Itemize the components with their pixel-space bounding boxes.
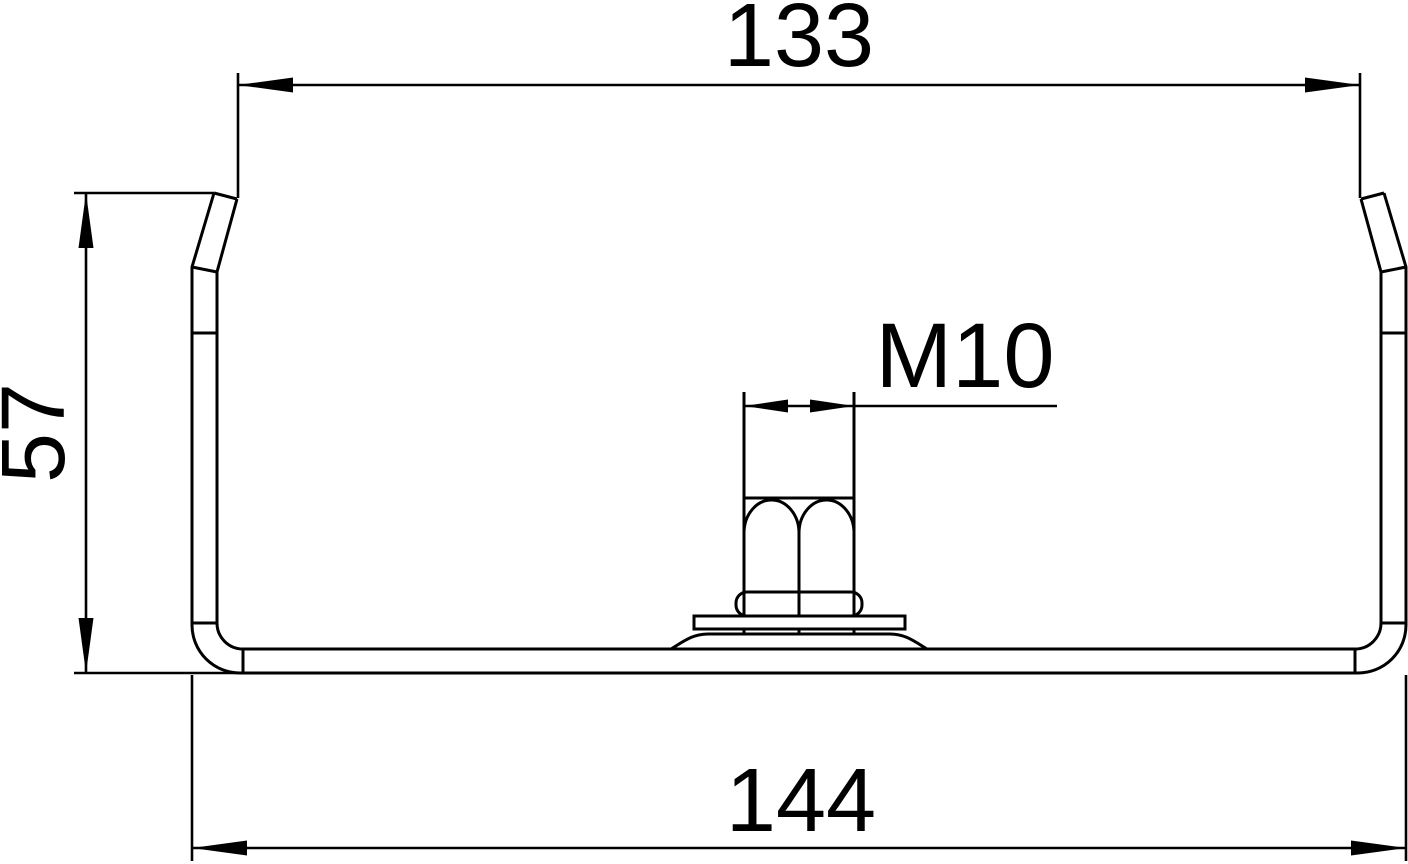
dimension-label-thread: M10	[876, 305, 1055, 407]
drawing-background	[0, 0, 1408, 864]
dimension-label-top-width: 133	[724, 0, 874, 86]
technical-drawing: 133 57 M10 144	[0, 0, 1408, 864]
dimension-label-bottom-width: 144	[726, 751, 876, 851]
dimension-label-height: 57	[0, 383, 84, 483]
technical-drawing-canvas: 133 57 M10 144	[0, 0, 1408, 864]
